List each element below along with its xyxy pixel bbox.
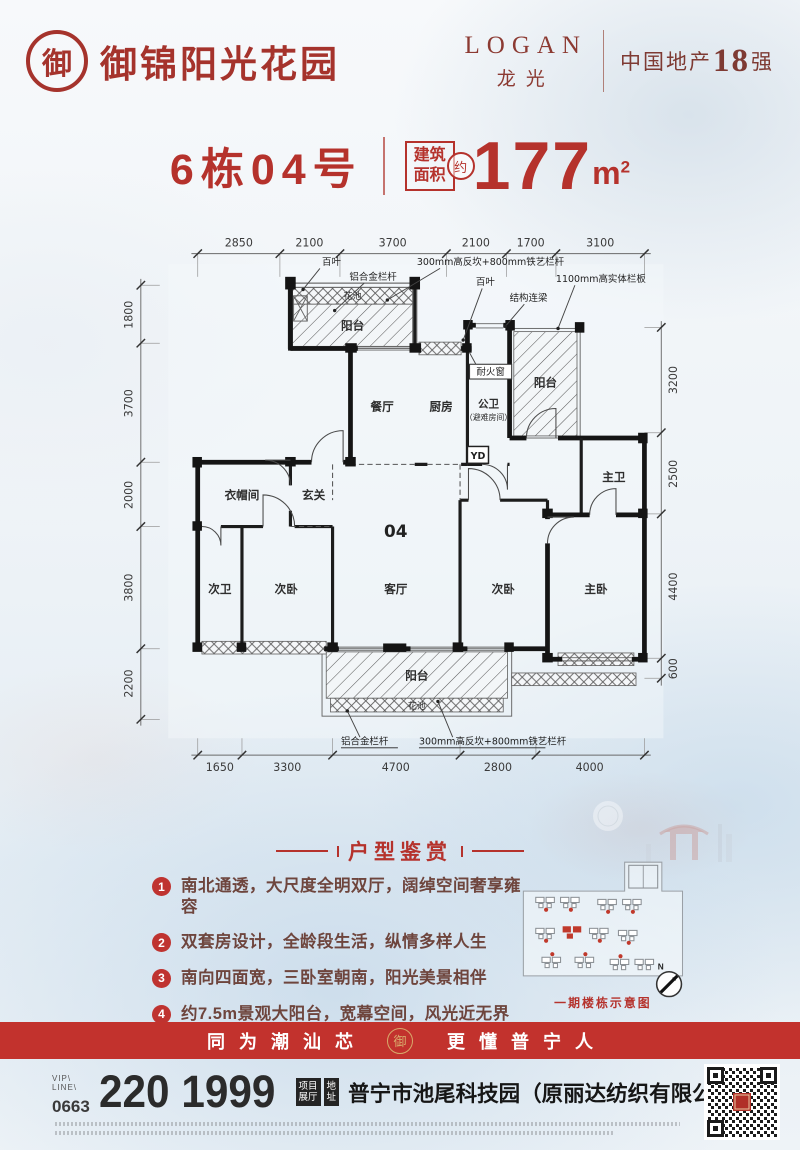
brand-right: LOGAN 龙光 中国地产18强	[465, 30, 775, 92]
feature-number-badge: 3	[152, 969, 171, 988]
vip-label-line1: VIP\	[52, 1075, 90, 1083]
room-balcony-bottom: 阳台	[405, 668, 429, 682]
annotation-fire-window: 耐火窗	[476, 366, 504, 378]
feature-item: 3 南向四面宽，三卧室朝南，阳光美景相伴	[152, 968, 532, 989]
phone-number: 220 1999	[99, 1066, 275, 1118]
room-balcony-right: 阳台	[534, 375, 558, 389]
dimension-left: 1800 3700 2000 3800 2200	[122, 279, 159, 726]
heading-deco-left-bar	[337, 846, 339, 857]
dim-right-1: 3200	[667, 366, 680, 394]
title-divider	[383, 137, 385, 195]
dim-top-3: 3700	[379, 236, 407, 249]
annotation-alu-rail-bottom: 铝合金栏杆	[341, 736, 389, 748]
room-second-bath: 次卫	[208, 582, 232, 596]
rank-prefix: 中国地产	[620, 46, 712, 76]
dim-bottom-1: 1650	[206, 761, 234, 774]
room-living: 客厅	[383, 582, 408, 596]
dim-bottom-3: 4700	[382, 761, 410, 774]
vip-area-code: 0663	[52, 1098, 90, 1115]
feature-text: 南北通透，大尺度全明双厅，阔绰空间奢享雍容	[181, 876, 532, 917]
developer-name-en: LOGAN	[465, 32, 588, 60]
dim-top-2: 2100	[295, 236, 323, 249]
developer-rank: 中国地产18强	[620, 43, 774, 80]
unit-name: 6栋04号	[170, 135, 363, 197]
approx-circle: 约	[447, 152, 475, 180]
dim-left-5: 2200	[122, 669, 135, 697]
slogan-right: 更懂普宁人	[433, 1028, 607, 1054]
disclaimer-text-line	[55, 1122, 680, 1126]
rank-suffix: 强	[751, 46, 774, 76]
poster-page: 御 御锦阳光花园 LOGAN 龙光 中国地产18强 6栋04号 建筑 面积 约 …	[0, 0, 800, 1150]
project-name: 御锦阳光花园	[100, 34, 340, 88]
qr-code	[704, 1064, 780, 1140]
dim-right-4: 600	[667, 658, 680, 679]
vip-line-block: VIP\ LINE\ 0663	[52, 1075, 90, 1115]
dim-top-4: 2100	[462, 236, 490, 249]
site-map: N 一期楼栋示意图	[516, 856, 694, 1011]
vip-label-line2: LINE\	[52, 1084, 90, 1092]
header-divider	[603, 30, 604, 92]
annotation-louver-right: 百叶	[476, 277, 495, 288]
dim-bottom-2: 3300	[273, 761, 301, 774]
master-window-sill	[558, 653, 634, 666]
dim-right-3: 4400	[667, 573, 680, 601]
feature-number-badge: 1	[152, 877, 171, 896]
feature-text: 南向四面宽，三卧室朝南，阳光美景相伴	[181, 968, 487, 989]
room-foyer: 玄关	[302, 488, 326, 502]
room-public-bath-sub: （避难房间）	[465, 412, 512, 422]
dim-left-1: 1800	[122, 301, 135, 329]
dim-left-2: 3700	[122, 389, 135, 417]
address-tags: 项目展厅 地址	[296, 1078, 340, 1107]
room-bedroom-left: 次卧	[275, 582, 299, 596]
room-master-bedroom: 主卧	[584, 582, 608, 596]
room-kitchen: 厨房	[430, 400, 453, 414]
features-title: 户型鉴赏	[348, 836, 452, 866]
feature-number-badge: 4	[152, 1005, 171, 1024]
dim-left-4: 3800	[122, 574, 135, 602]
area-tag-line2: 面积	[414, 166, 446, 186]
floor-plan: 2850 2100 3700 2100 1700 3100 1650 3300 …	[105, 222, 695, 791]
room-cloakroom: 衣帽间	[225, 488, 260, 502]
unit-number-label: 04	[384, 521, 407, 541]
dim-left-3: 2000	[122, 481, 135, 509]
compass-n-label: N	[658, 963, 664, 972]
footer: VIP\ LINE\ 0663 220 1999 项目展厅 地址 普宁市池尾科技…	[52, 1066, 757, 1118]
dim-top-1: 2850	[225, 236, 253, 249]
room-balcony-top: 阳台	[341, 319, 365, 333]
rank-number: 18	[713, 43, 750, 80]
tag-project-hall: 项目展厅	[296, 1078, 321, 1107]
feature-item: 2 双套房设计，全龄段生活，纵情多样人生	[152, 932, 532, 953]
project-logo-seal-icon: 御	[26, 30, 88, 92]
heading-deco-right-bar	[461, 846, 463, 857]
room-flowerbed-bottom: 花池	[408, 700, 426, 712]
left-wing-window-sill	[202, 641, 326, 654]
features-list: 1 南北通透，大尺度全明双厅，阔绰空间奢享雍容 2 双套房设计，全龄段生活，纵情…	[152, 876, 532, 1039]
developer-name-cn: 龙光	[465, 64, 588, 91]
dim-right-2: 2500	[667, 460, 680, 488]
annotation-duct-yd: YD	[470, 451, 486, 462]
room-master-bath: 主卫	[602, 470, 626, 484]
project-address: 普宁市池尾科技园（原丽达纺织有限公司）	[348, 1077, 757, 1108]
annotation-louver-top: 百叶	[322, 257, 341, 268]
developer-logo: LOGAN 龙光	[465, 32, 588, 91]
dim-top-6: 3100	[586, 236, 614, 249]
room-bedroom-right: 次卧	[492, 582, 516, 596]
room-dining: 餐厅	[370, 400, 395, 414]
area-badge: 建筑 面积 约 177 m2	[405, 132, 630, 200]
feature-item: 1 南北通透，大尺度全明双厅，阔绰空间奢享雍容	[152, 876, 532, 917]
dim-bottom-4: 2800	[484, 761, 512, 774]
site-map-caption: 一期楼栋示意图	[554, 996, 652, 1010]
qr-center-logo	[733, 1093, 751, 1111]
annotation-solid-panel: 1100mm高实体栏板	[556, 273, 646, 285]
slogan-left: 同为潮汕芯	[193, 1028, 367, 1054]
feature-number-badge: 2	[152, 933, 171, 952]
annotation-alu-rail-top: 铝合金栏杆	[349, 271, 397, 283]
kitchen-window-sill	[419, 342, 461, 355]
area-value: 177	[473, 132, 592, 200]
master-south-strip	[512, 673, 636, 686]
brand-left: 御 御锦阳光花园	[26, 30, 340, 92]
banner-seal-icon: 御	[387, 1028, 413, 1054]
tag-address: 地址	[324, 1078, 340, 1107]
disclaimer-text-line	[55, 1131, 615, 1135]
annotation-iron-rail-bottom: 300mm高反坎+800mm铁艺栏杆	[419, 736, 567, 748]
dim-top-5: 1700	[517, 236, 545, 249]
title-row: 6栋04号 建筑 面积 约 177 m2	[0, 132, 800, 200]
annotation-structural-beam: 结构连梁	[510, 292, 548, 304]
slogan-banner: 同为潮汕芯 御 更懂普宁人	[0, 1022, 800, 1059]
feature-text: 双套房设计，全龄段生活，纵情多样人生	[181, 932, 487, 953]
heading-deco-left-line	[276, 850, 328, 852]
room-public-bath: 公卫	[478, 398, 500, 410]
area-tag-line1: 建筑	[414, 146, 446, 166]
dim-bottom-5: 4000	[576, 761, 604, 774]
heading-deco-right-line	[472, 850, 524, 852]
area-unit: m2	[592, 157, 630, 189]
annotation-iron-rail-top: 300mm高反坎+800mm铁艺栏杆	[417, 256, 565, 268]
header: 御 御锦阳光花园 LOGAN 龙光 中国地产18强	[26, 30, 774, 92]
